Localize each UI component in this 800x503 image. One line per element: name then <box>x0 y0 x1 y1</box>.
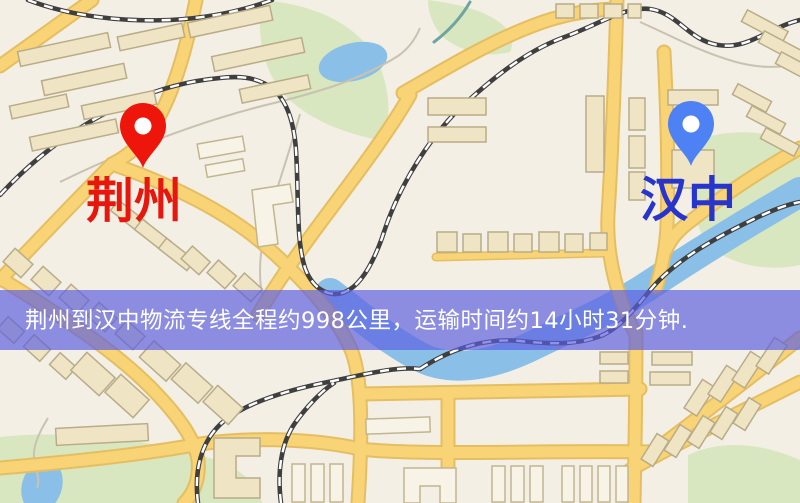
origin-pin-hole <box>135 118 152 135</box>
origin-label: 荆州 <box>86 173 182 229</box>
route-info-banner: 荆州到汉中物流专线全程约998公里，运输时间约14小时31分钟. <box>0 290 800 350</box>
route-info-text: 荆州到汉中物流专线全程约998公里，运输时间约14小时31分钟. <box>25 308 688 334</box>
map-viewport: 荆州到汉中物流专线全程约998公里，运输时间约14小时31分钟. 荆州 汉中 <box>0 0 800 503</box>
destination-label: 汉中 <box>640 172 736 228</box>
map-canvas[interactable]: 荆州到汉中物流专线全程约998公里，运输时间约14小时31分钟. 荆州 汉中 <box>0 0 800 503</box>
destination-pin-hole <box>683 116 700 133</box>
